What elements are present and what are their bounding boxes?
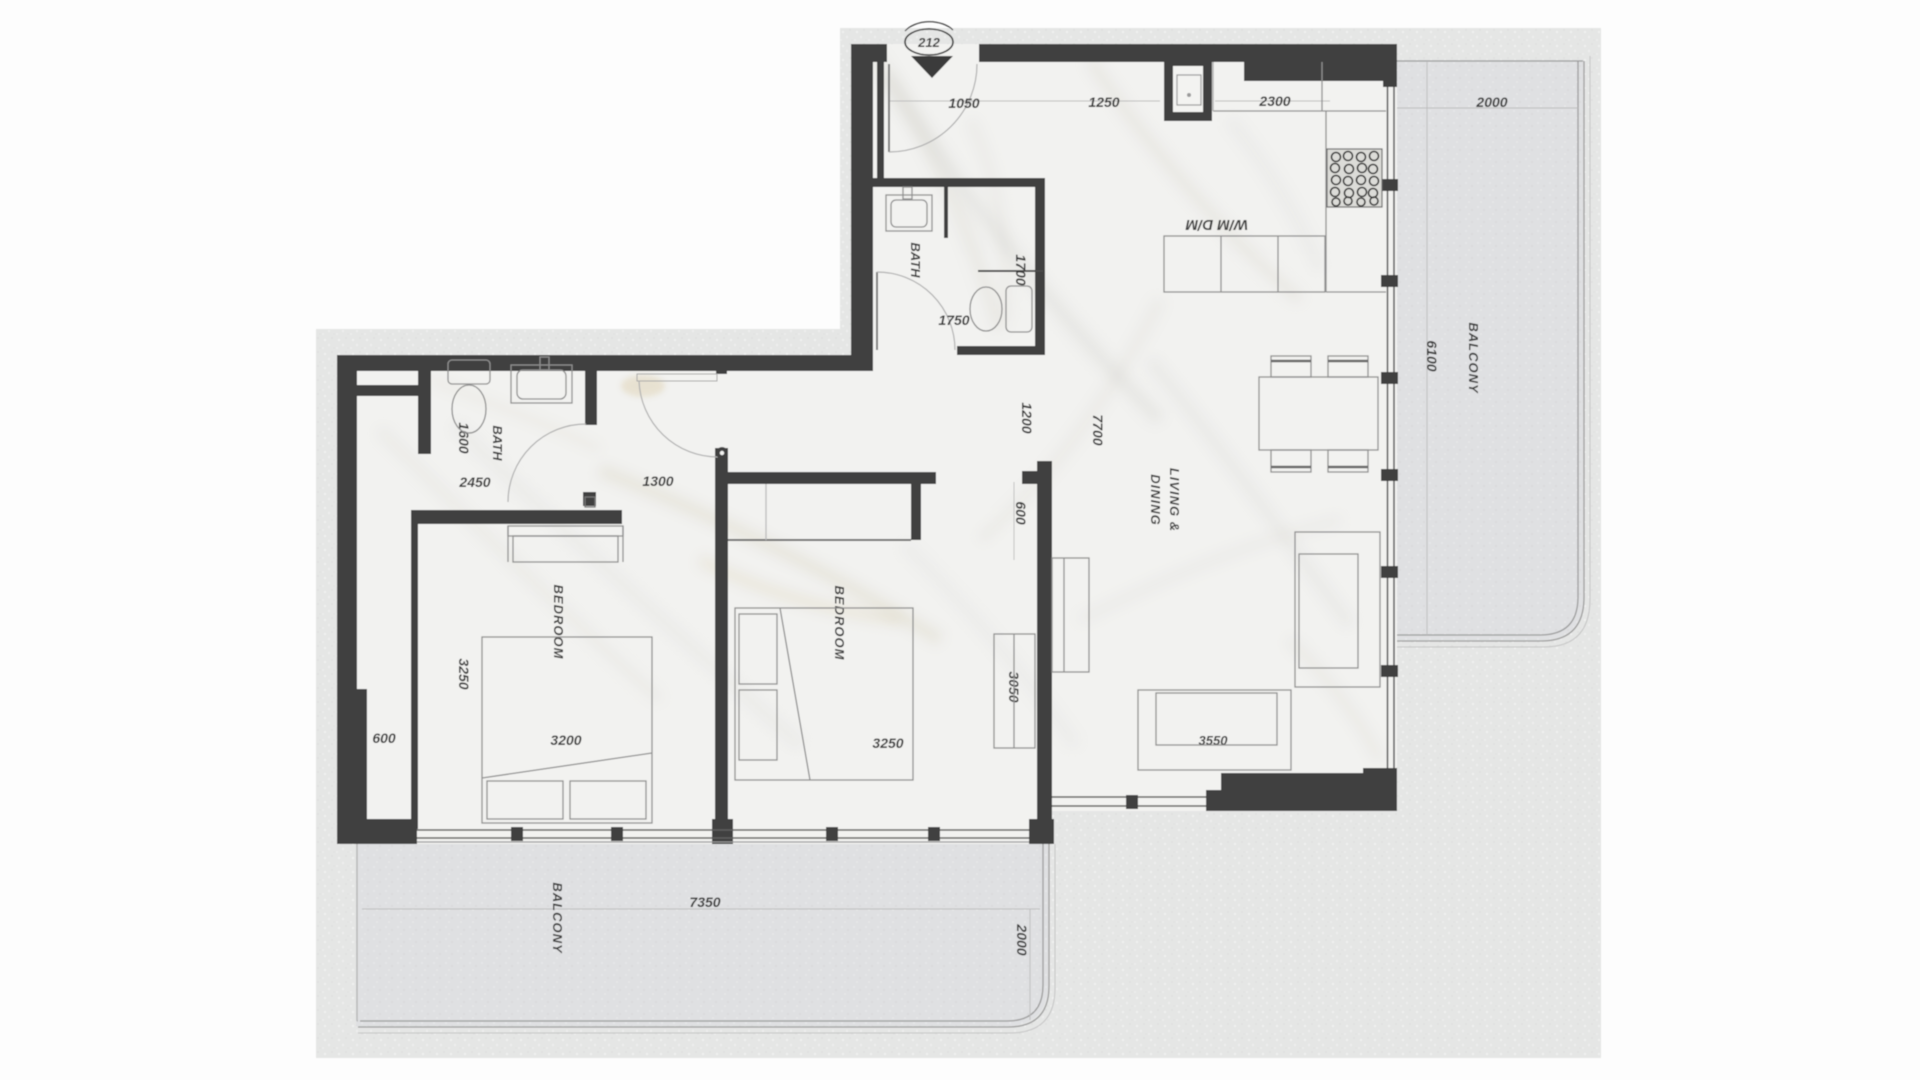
- svg-text:3250: 3250: [872, 735, 903, 751]
- svg-text:7350: 7350: [689, 894, 720, 910]
- svg-text:3200: 3200: [550, 732, 581, 748]
- svg-text:1750: 1750: [938, 312, 969, 328]
- svg-text:600: 600: [1013, 501, 1029, 525]
- svg-text:3550: 3550: [1199, 733, 1229, 748]
- svg-text:BEDROOM: BEDROOM: [551, 585, 566, 660]
- svg-text:BEDROOM: BEDROOM: [832, 586, 847, 661]
- svg-text:6100: 6100: [1424, 340, 1440, 371]
- svg-text:1050: 1050: [948, 95, 979, 111]
- svg-text:212: 212: [917, 35, 940, 50]
- svg-text:7700: 7700: [1090, 414, 1106, 445]
- svg-text:600: 600: [372, 730, 396, 746]
- svg-text:2300: 2300: [1258, 93, 1290, 109]
- svg-text:1300: 1300: [642, 473, 673, 489]
- svg-text:2450: 2450: [458, 474, 490, 490]
- svg-text:BATH: BATH: [908, 242, 923, 278]
- svg-text:1200: 1200: [1019, 402, 1035, 433]
- svg-text:W/M D/M: W/M D/M: [1185, 216, 1248, 233]
- svg-text:2000: 2000: [1014, 923, 1030, 955]
- svg-text:DINING: DINING: [1148, 474, 1163, 526]
- svg-text:2000: 2000: [1475, 94, 1507, 110]
- svg-text:1250: 1250: [1088, 94, 1119, 110]
- svg-text:BALCONY: BALCONY: [1466, 322, 1481, 394]
- svg-text:LIVING &: LIVING &: [1167, 468, 1182, 532]
- svg-text:3250: 3250: [456, 658, 472, 689]
- svg-text:BATH: BATH: [490, 425, 505, 461]
- svg-text:1700: 1700: [1013, 254, 1029, 285]
- svg-text:BALCONY: BALCONY: [550, 882, 565, 954]
